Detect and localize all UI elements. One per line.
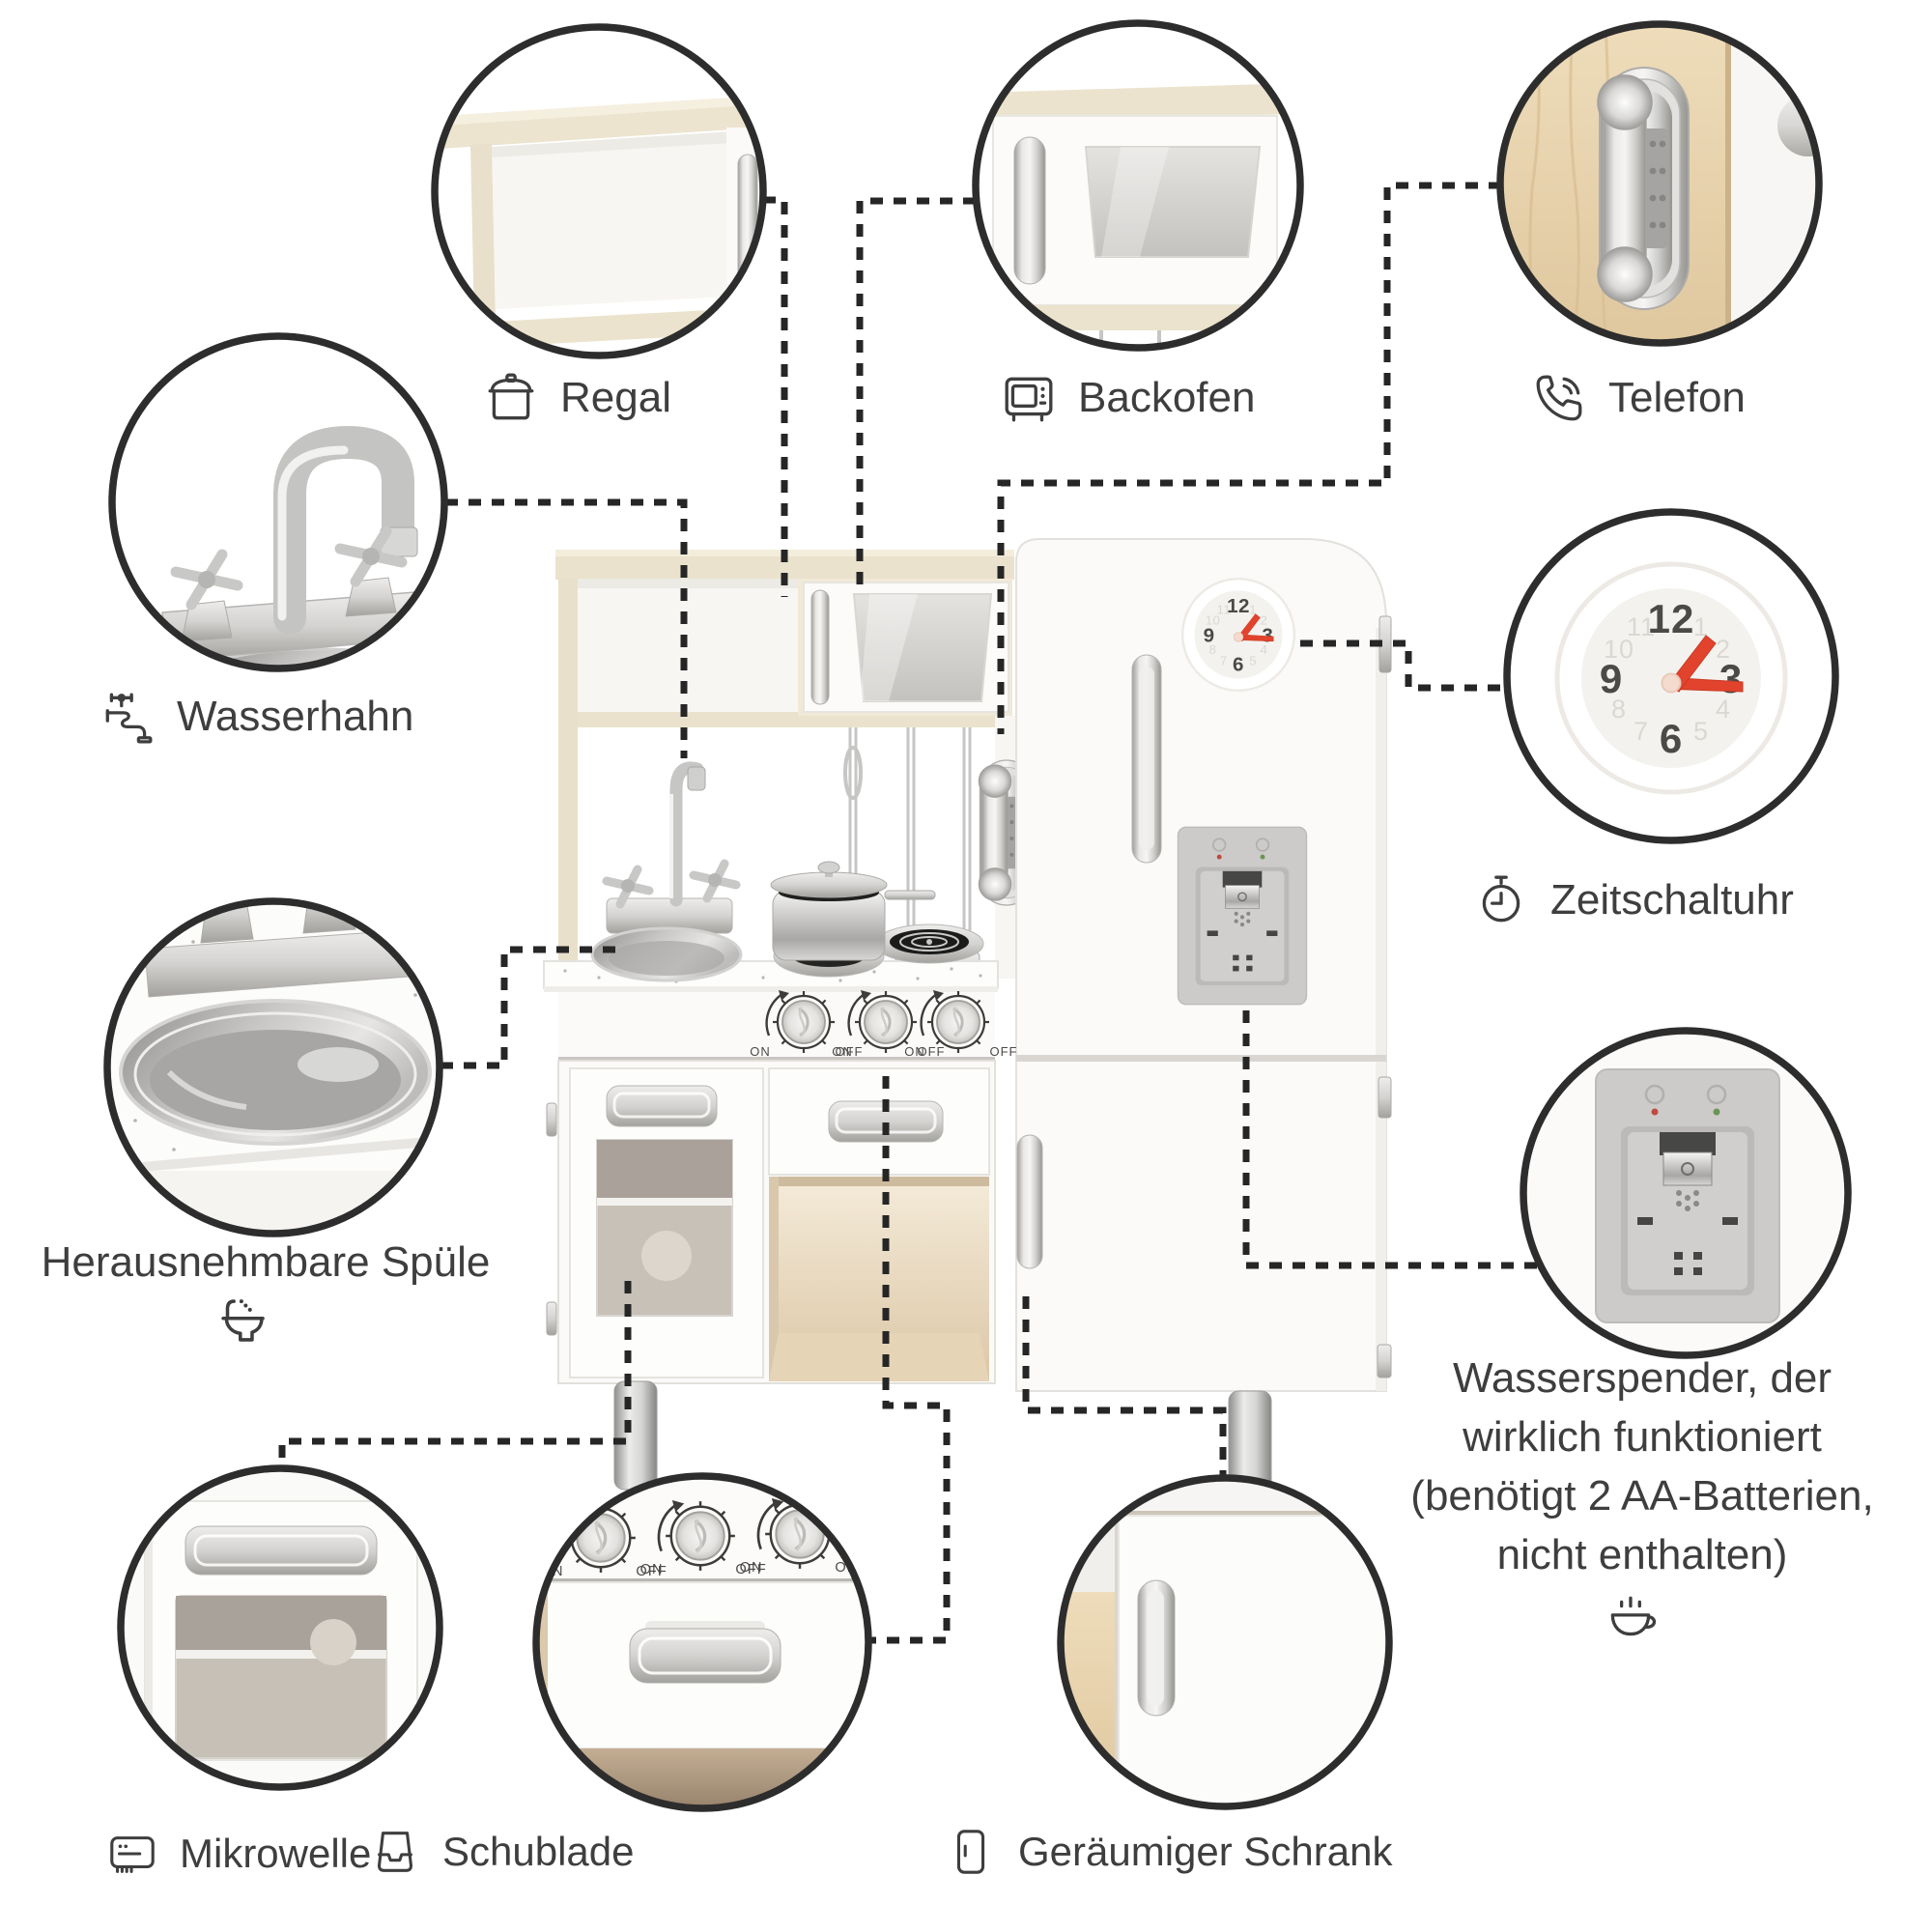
backofen-text: Backofen xyxy=(1078,374,1255,422)
oven-icon xyxy=(1001,370,1057,426)
wasserspender-line2: wirklich funktioniert xyxy=(1362,1407,1922,1466)
wasserhahn-text: Wasserhahn xyxy=(177,693,413,741)
zeitschaltuhr-label: Zeitschaltuhr xyxy=(1473,872,1794,928)
kitchen-lower-cabinets xyxy=(547,1061,995,1383)
connector-regal xyxy=(763,200,784,597)
pot-icon xyxy=(483,370,539,426)
kitchen-water-dispenser xyxy=(1179,827,1307,1004)
wasserspender-line4: nicht enthalten) xyxy=(1362,1525,1922,1584)
telefon-label: Telefon xyxy=(1531,370,1746,426)
door-icon xyxy=(945,1826,997,1878)
coffee-cup-icon xyxy=(1604,1590,1660,1646)
open-cubby xyxy=(769,1177,989,1381)
wasserhahn-label: Wasserhahn xyxy=(99,689,413,745)
mikrowelle-label: Mikrowelle xyxy=(106,1828,371,1880)
product-infographic: ON OFF 12 3 6 9 12 45 78 1011 xyxy=(0,0,1932,1932)
kitchen-oven xyxy=(798,579,1012,716)
zeitschaltuhr-text: Zeitschaltuhr xyxy=(1550,876,1794,924)
kitchen-clock xyxy=(1182,579,1294,691)
wasserspender-line3: (benötigt 2 AA-Batterien, xyxy=(1362,1466,1922,1525)
toy-kitchen-illustration xyxy=(544,539,1391,1492)
spuele-label: Herausnehmbare Spüle xyxy=(5,1233,526,1292)
telefon-text: Telefon xyxy=(1608,374,1746,422)
kitchen-knob-panel xyxy=(558,990,1018,1061)
connector-backofen xyxy=(860,201,976,591)
kitchen-fridge xyxy=(1016,539,1391,1391)
regal-text: Regal xyxy=(560,374,671,422)
sink-basin-icon xyxy=(213,1291,272,1350)
schublade-label: Schublade xyxy=(369,1826,635,1878)
schublade-text: Schublade xyxy=(442,1829,635,1875)
fridge-lower-handle xyxy=(1017,1135,1042,1268)
schrank-text: Geräumiger Schrank xyxy=(1018,1829,1393,1875)
backofen-label: Backofen xyxy=(1001,370,1255,426)
photo-faucet xyxy=(112,336,444,707)
wasserspender-label: Wasserspender, der wirklich funktioniert… xyxy=(1362,1349,1922,1584)
photo-shelf xyxy=(425,17,782,375)
drawer-icon xyxy=(369,1826,421,1878)
phone-call-icon xyxy=(1531,370,1587,426)
stopwatch-icon xyxy=(1473,872,1529,928)
wasserspender-line1: Wasserspender, der xyxy=(1362,1349,1922,1407)
microwave-icon xyxy=(106,1828,158,1880)
kitchen-leg-left xyxy=(614,1381,657,1490)
regal-label: Regal xyxy=(483,370,671,426)
mikrowelle-text: Mikrowelle xyxy=(180,1831,371,1877)
schrank-label: Geräumiger Schrank xyxy=(945,1826,1393,1878)
microwave-door-window xyxy=(597,1140,732,1316)
faucet-icon xyxy=(99,689,156,745)
